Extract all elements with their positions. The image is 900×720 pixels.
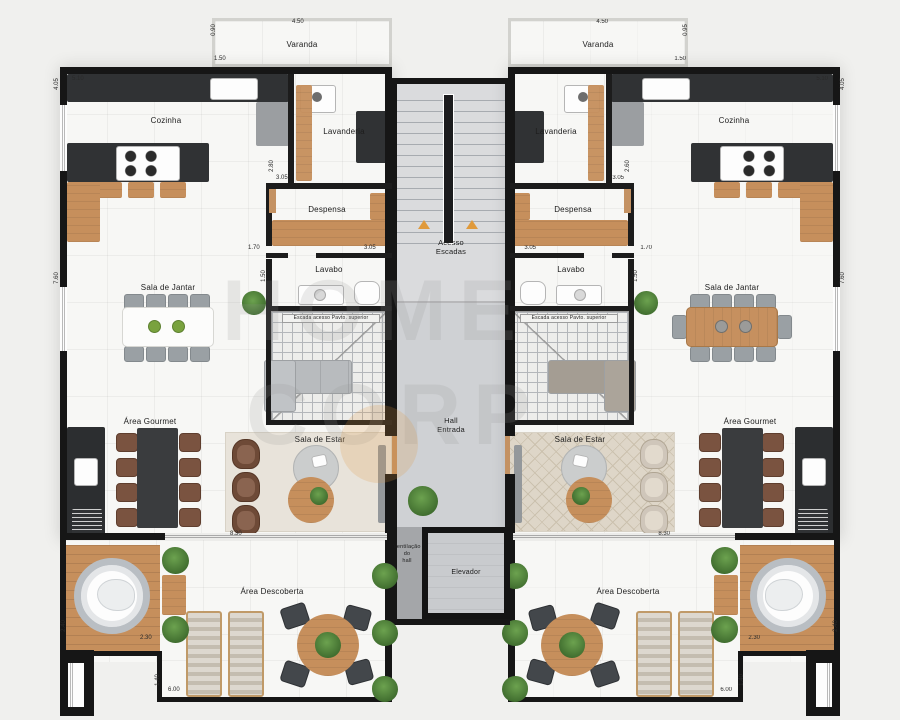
- kitchen-fridge: [611, 102, 644, 146]
- bush: [162, 616, 189, 643]
- table-centerpiece: [739, 320, 752, 333]
- spa-jacuzzi: [750, 558, 826, 634]
- apartment-unit: Varanda 4.50 0.90 1.50 Cozinha: [60, 15, 392, 720]
- partition-lavabo-top-b: [508, 253, 584, 258]
- dining-chair: [168, 346, 188, 362]
- room-label-sala-jantar: Sala de Jantar: [677, 283, 787, 293]
- gourmet-chair: [699, 508, 721, 527]
- dim-estar-width: 8.30: [658, 531, 670, 537]
- dim-despensa-width: 3.05: [276, 175, 288, 181]
- room-label-sala-estar: Sala de Estar: [260, 435, 380, 445]
- dining-chair: [190, 346, 210, 362]
- room-label-cozinha: Cozinha: [684, 116, 784, 126]
- terrace-wall-left: [834, 540, 840, 668]
- gourmet-chair: [762, 458, 784, 477]
- label-elevador: Elevador: [451, 569, 480, 578]
- kitchen-stool: [128, 182, 154, 198]
- partition-lavabo-top-a: [612, 253, 634, 258]
- dim-wall-main: 7.60: [54, 272, 60, 284]
- dining-chair: [756, 346, 776, 362]
- pillar-window: [68, 663, 84, 707]
- bush: [372, 620, 398, 646]
- up-arrow-icon: [466, 220, 478, 229]
- glass-door-terrace: [513, 533, 735, 540]
- room-label-varanda: Varanda: [212, 40, 392, 50]
- room-label-sala-jantar: Sala de Jantar: [113, 283, 223, 293]
- lavabo-basin: [314, 289, 326, 301]
- room-label-lavabo: Lavabo: [508, 265, 634, 275]
- wall-left: [60, 171, 67, 287]
- sun-lounger: [678, 611, 714, 697]
- gourmet-chair: [762, 483, 784, 502]
- gourmet-chair: [762, 433, 784, 452]
- wall-left: [833, 351, 840, 540]
- gourmet-chair: [762, 508, 784, 527]
- armchair: [232, 439, 260, 469]
- gourmet-chair: [179, 508, 201, 527]
- dim-despensa-height: 2.60: [625, 160, 631, 172]
- up-arrow-icon: [418, 220, 430, 229]
- terrace-wall-bottom: [508, 697, 743, 702]
- gourmet-chair: [699, 433, 721, 452]
- label-hall-entrada: Hall Entrada: [402, 416, 500, 435]
- washer-knob: [578, 92, 588, 102]
- dim-wall-upper: 4.05: [54, 78, 60, 90]
- wall-right-upper: [385, 67, 392, 436]
- dim-despensa-width: 3.05: [612, 175, 624, 181]
- partition-stair-top: [266, 306, 392, 311]
- partition-stair-left: [629, 311, 634, 423]
- hall-divider: [397, 301, 505, 303]
- wall-top: [60, 67, 392, 74]
- room-label-lavanderia: Lavanderia: [296, 127, 392, 137]
- kitchen-fridge: [256, 102, 289, 146]
- window-kitchen: [833, 105, 840, 171]
- window-dining: [833, 287, 840, 351]
- dim-despensa-height: 2.80: [269, 160, 275, 172]
- planter: [714, 575, 738, 615]
- dining-chair-end: [672, 315, 687, 339]
- dim-cozinha-width: 5.10: [72, 76, 84, 82]
- sun-lounger: [228, 611, 264, 697]
- wall-left: [60, 67, 67, 105]
- gourmet-chair: [699, 458, 721, 477]
- bush: [162, 547, 189, 574]
- dim-varanda-side: 0.90: [211, 24, 217, 36]
- bush: [372, 676, 398, 702]
- dining-chair: [734, 346, 754, 362]
- dim-terraco-width: 6.00: [720, 687, 732, 693]
- core-wall-left: [392, 78, 397, 436]
- terrace-wall-bottom: [157, 697, 392, 702]
- core-wall-top: [392, 78, 510, 84]
- wall-left: [60, 351, 67, 540]
- plant: [559, 632, 585, 658]
- wall-left: [833, 171, 840, 287]
- bush: [372, 563, 398, 589]
- partition-lavabo-top-b: [316, 253, 392, 258]
- gourmet-chair: [179, 433, 201, 452]
- table-centerpiece: [148, 320, 161, 333]
- glass-door-terrace: [165, 533, 387, 540]
- toilet: [520, 281, 546, 305]
- armchair: [640, 472, 668, 502]
- tv-console: [514, 445, 522, 523]
- dim-cozinha-width: 5.10: [816, 76, 828, 82]
- dim-wall-main: 7.60: [840, 272, 846, 284]
- label-ventilacao: Ventilação do hall: [392, 544, 422, 565]
- partition-kitchen-laundry: [288, 74, 294, 183]
- dim-varanda-depth: 1.50: [214, 56, 226, 62]
- partition-laundry-despensa: [508, 183, 634, 189]
- hall-plant: [408, 486, 438, 516]
- partition-kitchen-laundry: [606, 74, 612, 183]
- table-centerpiece: [172, 320, 185, 333]
- dining-table: [686, 307, 778, 347]
- room-label-area-descoberta: Área Descoberta: [568, 587, 688, 597]
- spa-jacuzzi: [74, 558, 150, 634]
- gourmet-table: [722, 428, 763, 528]
- dim-deck-width: 2.30: [140, 635, 152, 641]
- partition-laundry-despensa: [266, 183, 392, 189]
- gourmet-chair: [116, 508, 138, 527]
- gourmet-chair: [179, 458, 201, 477]
- gourmet-chair: [116, 483, 138, 502]
- core-wall-bottom: [392, 619, 510, 625]
- dim-deck-width: 2.30: [748, 635, 760, 641]
- plant: [634, 291, 658, 315]
- plant: [315, 632, 341, 658]
- building-core: Acesso Escadas Hall Entrada Ventilação d…: [392, 78, 510, 626]
- wall-right-lower: [385, 474, 392, 540]
- partition-stair-bottom: [266, 420, 392, 425]
- table-centerpiece: [715, 320, 728, 333]
- apartment-unit: Varanda 4.50 0.95 1.50 Cozinha: [508, 15, 840, 720]
- floorplan-canvas: Varanda 4.50 0.90 1.50 Cozinha: [0, 0, 900, 720]
- dining-chair: [712, 346, 732, 362]
- gourmet-chair: [116, 433, 138, 452]
- dim-lavabo-width: 3.05: [364, 245, 376, 251]
- room-label-area-gourmet: Área Gourmet: [95, 417, 205, 427]
- entry-door-left: [392, 436, 397, 474]
- dining-table: [122, 307, 214, 347]
- washer-knob: [312, 92, 322, 102]
- terrace-wall-left: [60, 540, 66, 668]
- kitchen-wood-counter: [800, 182, 833, 242]
- planter: [162, 575, 186, 615]
- window-dining: [60, 287, 67, 351]
- laundry-appliance: [510, 111, 544, 163]
- dim-deck-height: 2.40: [833, 620, 839, 632]
- toilet: [354, 281, 380, 305]
- partition-stair-top: [508, 306, 634, 311]
- gourmet-table: [137, 428, 178, 528]
- dining-chair-end: [777, 315, 792, 339]
- room-label-varanda: Varanda: [508, 40, 688, 50]
- core-wall-right: [505, 78, 510, 436]
- partition-stair-bottom: [508, 420, 634, 425]
- despensa-counter: [510, 220, 628, 246]
- dining-chair: [146, 346, 166, 362]
- plant: [572, 487, 590, 505]
- stair-label: Escada acesso Pavto. superior: [520, 314, 618, 323]
- stair-stringer: [443, 94, 454, 244]
- kitchen-sink: [210, 78, 258, 100]
- room-label-sala-estar: Sala de Estar: [520, 435, 640, 445]
- partition-lavabo-top-a: [266, 253, 288, 258]
- dim-lavabo-width: 3.05: [524, 245, 536, 251]
- elevator: Elevador: [422, 527, 510, 619]
- bush: [711, 616, 738, 643]
- partition-stair-left: [266, 311, 271, 423]
- kitchen-stool: [160, 182, 186, 198]
- despensa-counter: [272, 220, 390, 246]
- kitchen-wood-counter: [67, 182, 100, 242]
- gourmet-chair: [116, 458, 138, 477]
- dim-terraco-width: 6.00: [168, 687, 180, 693]
- dim-terraco-height: 1.40: [739, 674, 745, 686]
- pillar-window: [816, 663, 832, 707]
- dim-corredor: 1.70: [640, 245, 652, 251]
- dim-wall-upper: 4.05: [840, 78, 846, 90]
- lavabo-basin: [574, 289, 586, 301]
- dim-deck-height: 2.40: [61, 620, 67, 632]
- kitchen-sink: [642, 78, 690, 100]
- dining-chair: [124, 346, 144, 362]
- room-label-lavanderia: Lavanderia: [508, 127, 604, 137]
- bush: [711, 547, 738, 574]
- cooktop: [116, 146, 180, 181]
- plant: [310, 487, 328, 505]
- dim-corredor: 1.70: [248, 245, 260, 251]
- dim-lavabo-height: 1.50: [633, 270, 639, 282]
- kitchen-stool: [714, 182, 740, 198]
- window-kitchen: [60, 105, 67, 171]
- gourmet-chair: [179, 483, 201, 502]
- room-label-lavabo: Lavabo: [266, 265, 392, 275]
- room-label-despensa: Despensa: [518, 205, 628, 215]
- room-label-despensa: Despensa: [272, 205, 382, 215]
- dim-varanda-width: 4.50: [596, 19, 608, 25]
- wall-left: [833, 67, 840, 105]
- room-label-cozinha: Cozinha: [116, 116, 216, 126]
- wall-top: [508, 67, 840, 74]
- gourmet-chair: [699, 483, 721, 502]
- dim-varanda-depth: 1.50: [674, 56, 686, 62]
- dim-estar-width: 8.30: [230, 531, 242, 537]
- entry-door-right: [505, 436, 510, 474]
- gourmet-sink: [802, 458, 826, 486]
- kitchen-stool: [746, 182, 772, 198]
- bush: [502, 676, 528, 702]
- label-acesso-escadas: Acesso Escadas: [402, 238, 500, 257]
- plant: [242, 291, 266, 315]
- room-label-area-gourmet: Área Gourmet: [695, 417, 805, 427]
- cooktop: [720, 146, 784, 181]
- dim-varanda-side: 0.95: [683, 24, 689, 36]
- gourmet-sink: [74, 458, 98, 486]
- room-label-area-descoberta: Área Descoberta: [212, 587, 332, 597]
- armchair: [232, 472, 260, 502]
- stair-label: Escada acesso Pavto. superior: [282, 314, 380, 323]
- dining-chair: [690, 346, 710, 362]
- dim-terraco-height: 1.40: [155, 674, 161, 686]
- dim-varanda-width: 4.50: [292, 19, 304, 25]
- sun-lounger: [636, 611, 672, 697]
- sun-lounger: [186, 611, 222, 697]
- armchair: [640, 439, 668, 469]
